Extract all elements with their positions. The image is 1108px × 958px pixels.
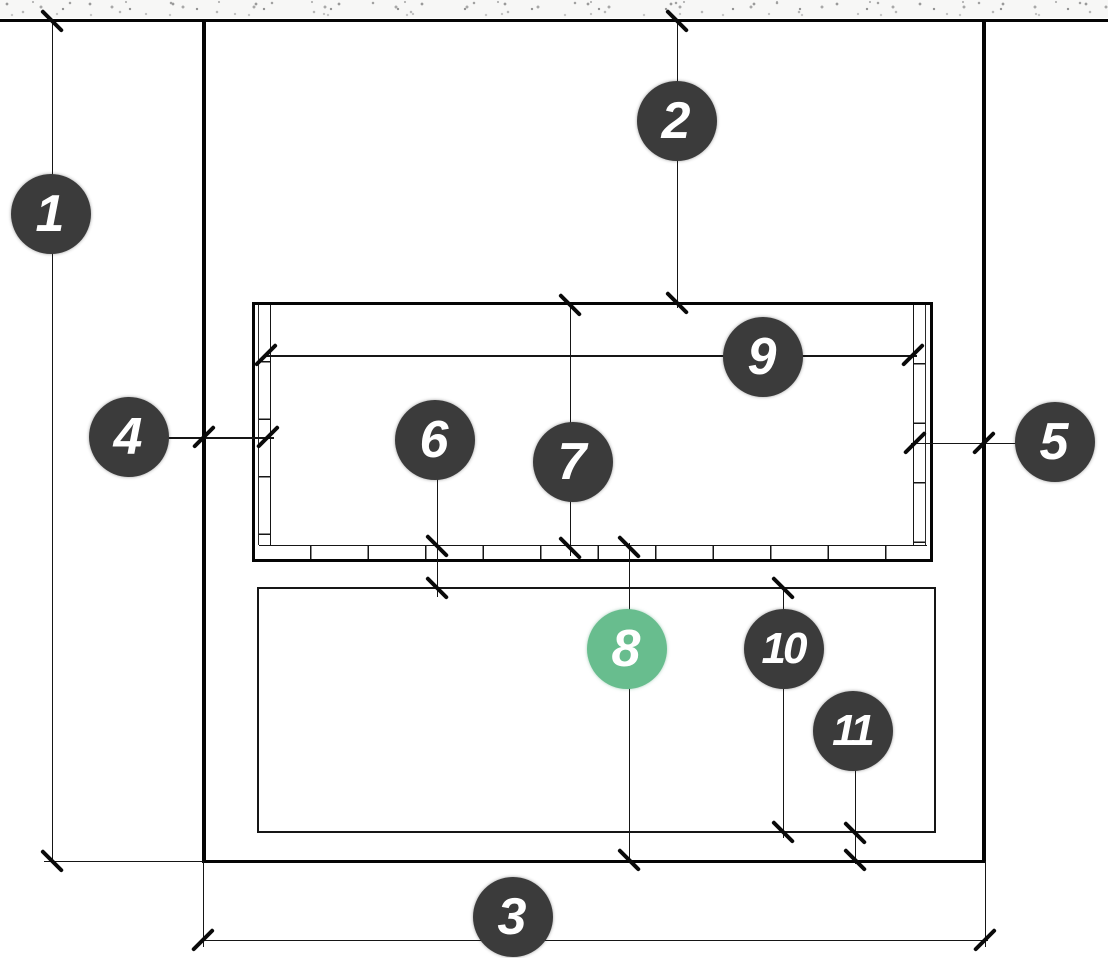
callout-badge-3[interactable]: 3 xyxy=(473,877,553,957)
dim-line-5 xyxy=(911,443,1017,445)
window-right-mullion-strip xyxy=(913,305,926,545)
callout-number: 3 xyxy=(498,891,527,943)
dim-line-8 xyxy=(629,543,631,863)
callout-badge-1[interactable]: 1 xyxy=(11,174,91,254)
dim-line-1 xyxy=(52,20,54,863)
callout-number: 2 xyxy=(662,95,691,147)
dim-extension-left xyxy=(203,861,205,947)
callout-number: 4 xyxy=(114,411,143,463)
dim-connector-bottom-left xyxy=(44,861,204,863)
opening-left-line xyxy=(202,20,206,863)
callout-badge-8-highlighted[interactable]: 8 xyxy=(587,609,667,689)
callout-badge-10[interactable]: 10 xyxy=(744,609,824,689)
callout-badge-4[interactable]: 4 xyxy=(89,397,169,477)
dim-line-9 xyxy=(263,355,917,357)
hatched-wall-band xyxy=(0,0,1108,18)
window-sill-tile-row xyxy=(259,545,927,559)
dim-line-4 xyxy=(167,437,274,439)
callout-number: 9 xyxy=(748,331,777,383)
callout-badge-7[interactable]: 7 xyxy=(533,422,613,502)
dim-line-6 xyxy=(437,478,439,597)
callout-number: 6 xyxy=(420,414,449,466)
wall-top-line xyxy=(0,19,1108,23)
callout-number: 7 xyxy=(558,436,587,488)
callout-number: 5 xyxy=(1040,416,1069,468)
callout-badge-5[interactable]: 5 xyxy=(1015,402,1095,482)
callout-number: 11 xyxy=(832,709,872,753)
dim-line-11 xyxy=(855,769,857,864)
dim-extension-right xyxy=(985,861,987,947)
window-left-mullion-strip xyxy=(258,305,271,545)
dim-line-2 xyxy=(677,21,679,308)
callout-number: 1 xyxy=(36,188,65,240)
opening-bottom-line xyxy=(202,860,986,864)
callout-number: 10 xyxy=(762,627,805,671)
callout-number: 8 xyxy=(612,623,641,675)
elevation-diagram: 1 2 3 4 5 6 7 8 9 10 11 xyxy=(0,0,1108,958)
callout-badge-2[interactable]: 2 xyxy=(637,81,717,161)
callout-badge-9[interactable]: 9 xyxy=(723,317,803,397)
callout-badge-6[interactable]: 6 xyxy=(395,400,475,480)
callout-badge-11[interactable]: 11 xyxy=(813,691,893,771)
dim-line-3 xyxy=(200,940,988,942)
